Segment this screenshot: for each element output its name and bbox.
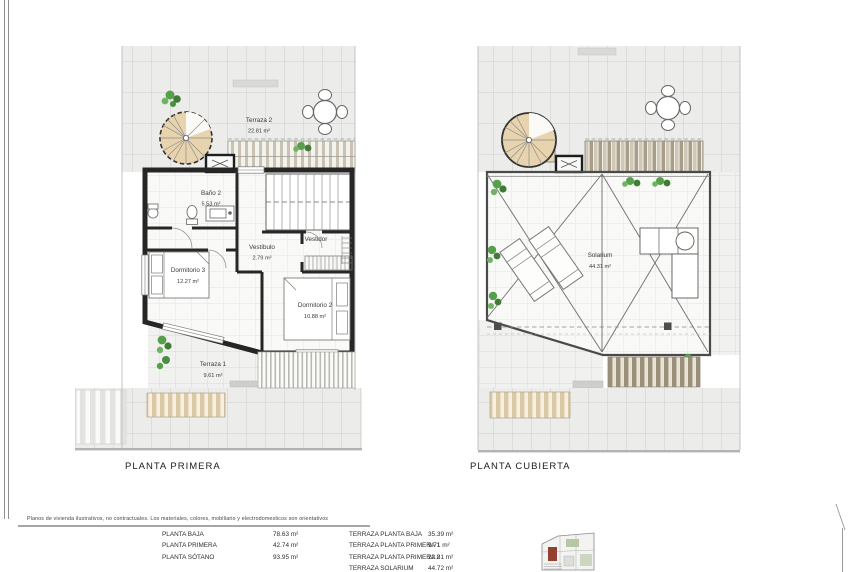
upper-terrace-band	[122, 46, 355, 76]
room-area: 5.53 m²	[202, 202, 221, 208]
plan-title-primera: PLANTA PRIMERA	[125, 461, 221, 472]
plan-planta-primera: Terraza 2 22.81 m² Baño 2 5.53 m² Vestíb…	[75, 46, 362, 472]
area-value: 9.71 m²	[428, 540, 450, 551]
room-label: Solarium	[588, 252, 613, 259]
anchor-block-left	[494, 323, 502, 331]
step-block	[573, 381, 603, 388]
room-area: 10.88 m²	[304, 314, 326, 320]
table-row: TERRAZA PLANTA PRIMERA 1 9.71 m²	[349, 540, 453, 551]
room-area: 2.79 m²	[253, 256, 272, 262]
plan-annotation-block	[233, 80, 278, 87]
pergola-slats-dark	[608, 357, 700, 387]
room-label: Dormitorio 3	[171, 267, 206, 274]
sink-icon	[676, 232, 694, 250]
area-label: PLANTA BAJA	[162, 529, 273, 540]
footer-rule	[18, 525, 370, 527]
room-area: 9.61 m²	[204, 373, 223, 379]
hedge-strip	[76, 390, 126, 444]
table-row: TERRAZA SOLARIUM 44.72 m²	[349, 563, 453, 572]
project-thumbnail	[540, 532, 597, 572]
area-label: TERRAZA PLANTA PRIMERA 2	[349, 552, 428, 563]
right-strip	[710, 172, 740, 355]
floorplan-drawing: Terraza 2 22.81 m² Baño 2 5.53 m² Vestíb…	[0, 0, 850, 515]
frame-corner-tick	[828, 498, 850, 538]
room-label: Vestidor	[305, 236, 328, 243]
area-label: PLANTA PRIMERA	[162, 540, 273, 551]
pergola-slats-bottom	[147, 393, 225, 417]
spiral-staircase	[502, 113, 556, 167]
bed-dormitorio3	[149, 252, 209, 298]
area-label: PLANTA SÓTANO	[162, 552, 273, 563]
area-value: 35.39 m²	[428, 529, 453, 540]
room-label: Terraza 2	[246, 117, 273, 124]
areas-table-right: TERRAZA PLANTA BAJA 35.39 m² TERRAZA PLA…	[349, 529, 453, 572]
pergola-slats-bottom	[490, 392, 570, 418]
spiral-staircase	[160, 112, 212, 164]
plan-edge-bottom	[478, 450, 740, 452]
thumbnail-red-block	[548, 547, 557, 561]
skylight-box	[556, 156, 582, 172]
table-row: PLANTA BAJA 78.63 m²	[162, 529, 298, 540]
room-label: Dormitorio 2	[298, 302, 333, 309]
area-value: 44.72 m²	[428, 563, 453, 572]
area-label: TERRAZA PLANTA PRIMERA 1	[349, 540, 428, 551]
area-label: TERRAZA PLANTA BAJA	[349, 529, 428, 540]
thumbnail-green-block	[566, 539, 579, 547]
areas-table-left: PLANTA BAJA 78.63 m² PLANTA PRIMERA 42.7…	[162, 529, 298, 563]
area-value: 42.74 m²	[273, 540, 298, 551]
room-label: Baño 2	[201, 190, 221, 197]
area-value: 93.95 m²	[273, 552, 298, 563]
table-row: TERRAZA PLANTA BAJA 35.39 m²	[349, 529, 453, 540]
room-area: 22.81 m²	[248, 129, 270, 135]
disclaimer-text: Planos de vivienda ilustrativos, no cont…	[27, 516, 328, 522]
room-label: Terraza 1	[200, 361, 227, 368]
table-row: PLANTA SÓTANO 93.95 m²	[162, 552, 298, 563]
anchor-block-right	[664, 323, 672, 331]
step-block	[230, 381, 258, 387]
table-row: TERRAZA PLANTA PRIMERA 2 22.81 m²	[349, 552, 453, 563]
area-value: 22.81 m²	[428, 552, 453, 563]
table-row: PLANTA PRIMERA 42.74 m²	[162, 540, 298, 551]
area-label: TERRAZA SOLARIUM	[349, 563, 428, 572]
room-area: 12.27 m²	[177, 279, 199, 285]
plan-annotation-block	[578, 48, 616, 55]
pergola-slats-roof	[585, 141, 703, 172]
area-value: 78.63 m²	[273, 529, 298, 540]
plan-sheet: Terraza 2 22.81 m² Baño 2 5.53 m² Vestíb…	[0, 0, 850, 572]
room-label: Vestíbulo	[249, 244, 275, 251]
room-area: 44.31 m²	[589, 264, 611, 270]
thumbnail-green-block2	[580, 554, 592, 566]
plan-title-cubierta: PLANTA CUBIERTA	[470, 461, 571, 472]
pedestal-sink-icon	[148, 208, 158, 218]
toilet-icon	[187, 206, 197, 219]
interior-staircase	[266, 174, 350, 230]
plan-edge-bottom	[75, 448, 362, 450]
terraza1-railing	[258, 352, 355, 388]
plan-planta-cubierta: Solarium 44.31 m² PLANTA CUBIERTA	[470, 46, 740, 472]
bed-dormitorio2	[284, 278, 350, 340]
